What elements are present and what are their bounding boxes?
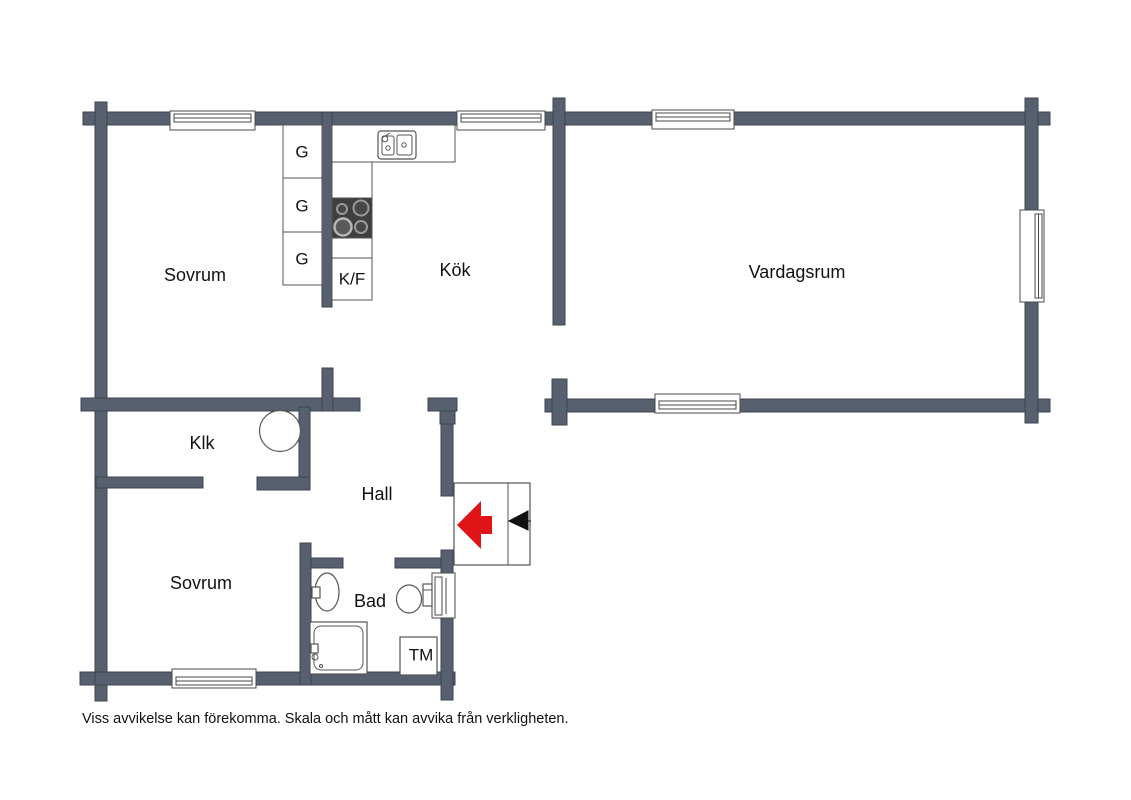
stove-icon <box>332 198 372 238</box>
wall-right-nub-top <box>1038 112 1050 125</box>
disclaimer-text: Viss avvikelse kan förekomma. Skala och … <box>82 711 569 727</box>
wall-bedroom-bath-divider <box>300 543 311 685</box>
wall-bath-top-left <box>311 558 343 568</box>
shower-icon <box>310 622 367 674</box>
floorplan-page: Sovrum Kök Vardagsrum Klk Hall Sovrum Ba… <box>0 0 1131 800</box>
wall-klk-bottom-left <box>96 477 203 488</box>
window-bottom-bedroom <box>172 669 256 688</box>
window-living-south <box>655 394 740 413</box>
window-top-bedroom <box>170 111 255 130</box>
window-top-living <box>652 110 734 129</box>
wall-mid-horizontal-klk <box>81 398 360 411</box>
wall-right-nub-bottom <box>1038 399 1050 412</box>
walls <box>80 98 1050 701</box>
wall-bedroom-kitchen <box>322 112 332 307</box>
bath-sink-icon <box>312 573 339 611</box>
label-washing-machine: TM <box>409 646 434 665</box>
toilet-icon <box>397 584 433 613</box>
wall-kitchen-living-divider <box>553 98 565 325</box>
wall-mid-horizontal-living-b <box>740 399 1050 412</box>
room-label-hall: Hall <box>361 484 392 504</box>
wall-mid-horizontal-entry <box>428 398 457 411</box>
label-wardrobe: G <box>295 143 308 162</box>
labels: Sovrum Kök Vardagsrum Klk Hall Sovrum Ba… <box>82 143 845 728</box>
sink-icon <box>378 131 416 159</box>
label-wardrobe: G <box>295 250 308 269</box>
room-label-closet: Klk <box>189 433 215 453</box>
room-label-bathroom: Bad <box>354 591 386 611</box>
kitchen-fixtures <box>283 125 455 300</box>
room-label-bedroom-bottom: Sovrum <box>170 573 232 593</box>
window-top-kitchen <box>457 111 545 130</box>
kitchen-cabinet-cell <box>332 162 372 198</box>
kitchen-cabinet-cell <box>332 238 372 258</box>
wall-bedroom-kitchen-stub <box>322 368 333 411</box>
room-label-kitchen: Kök <box>439 260 471 280</box>
entrance <box>454 483 531 565</box>
wall-bath-top-right <box>395 558 441 568</box>
water-heater-icon <box>260 411 301 452</box>
room-label-living: Vardagsrum <box>749 262 846 282</box>
wall-left-nub-bottom <box>80 672 96 685</box>
window-bath-east <box>432 573 455 618</box>
floorplan-drawing: Sovrum Kök Vardagsrum Klk Hall Sovrum Ba… <box>0 0 1131 800</box>
label-wardrobe: G <box>295 197 308 216</box>
room-label-bedroom-top: Sovrum <box>164 265 226 285</box>
label-fridge-freezer: K/F <box>339 270 365 289</box>
wall-mid-post <box>552 379 567 425</box>
wall-klk-bottom-right <box>257 477 310 490</box>
window-right-living <box>1020 210 1044 302</box>
